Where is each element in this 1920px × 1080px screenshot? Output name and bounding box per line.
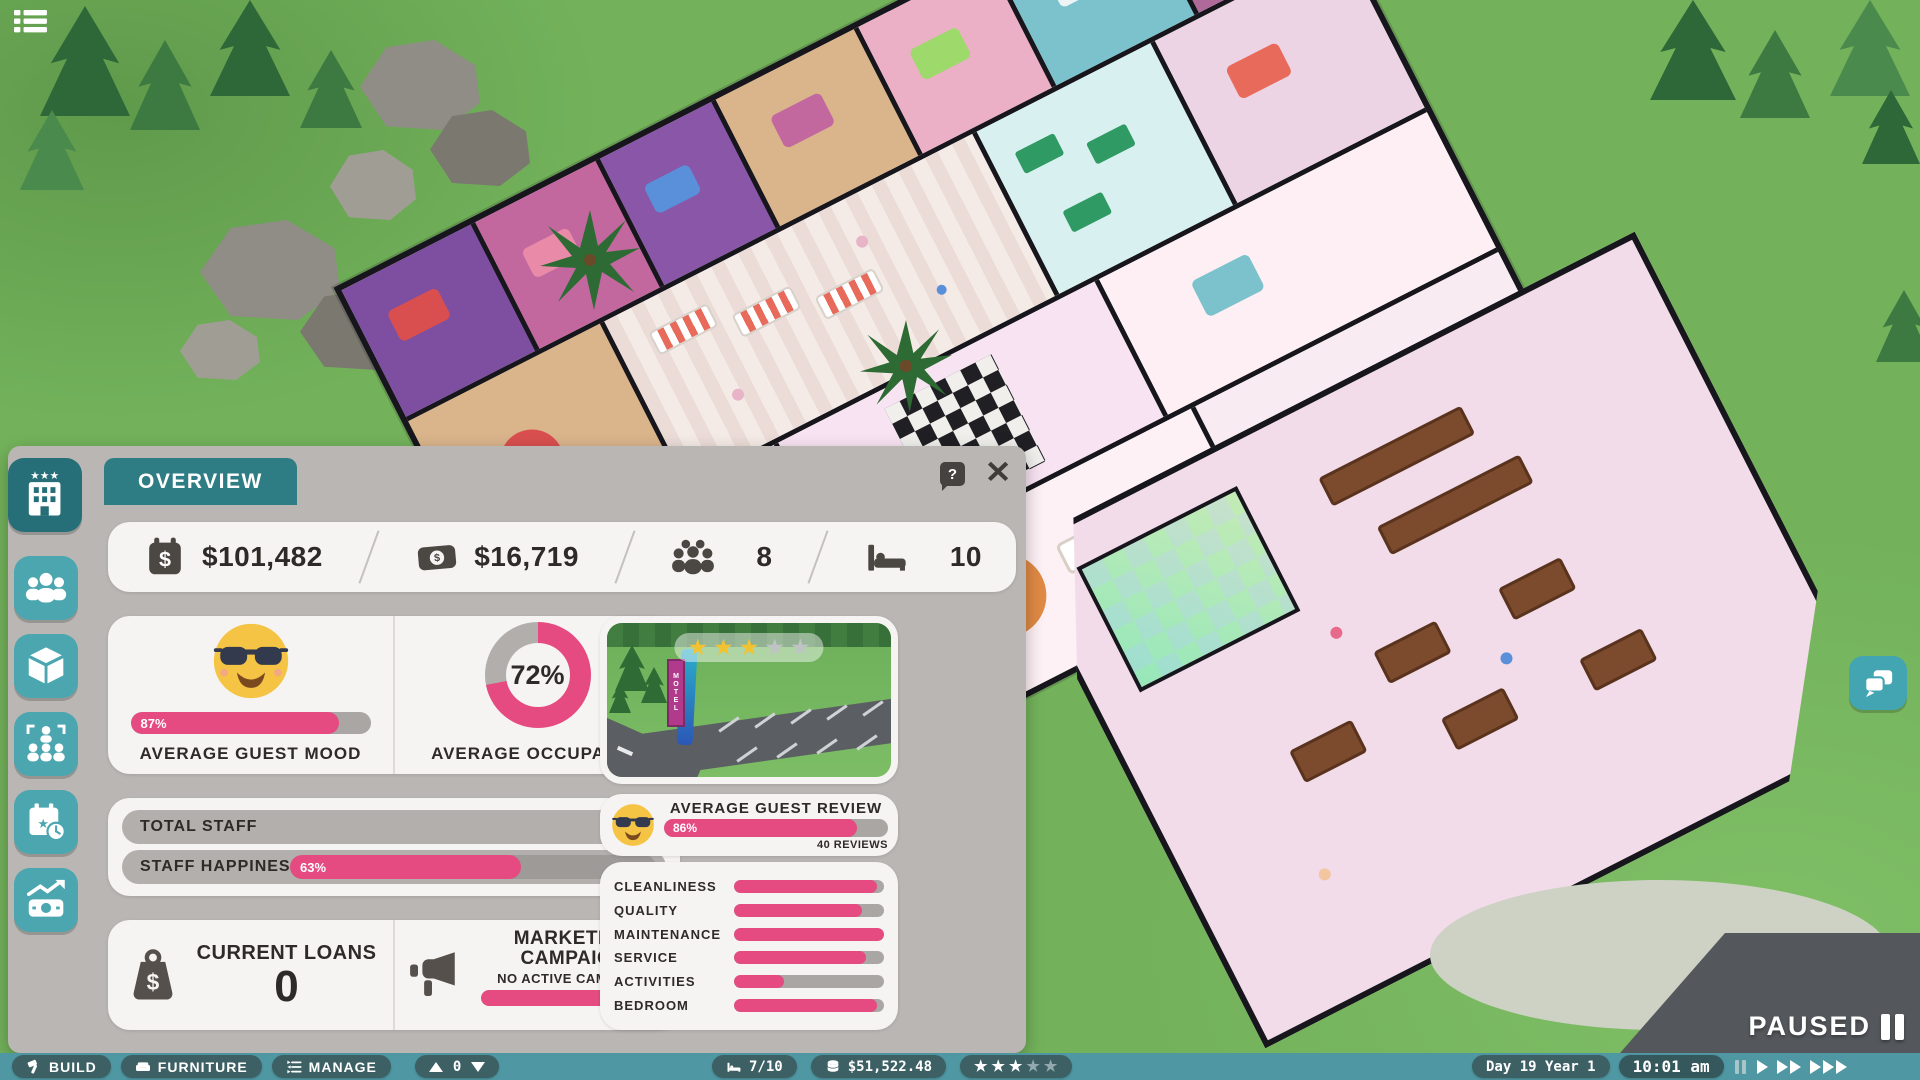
guest-mood-bar-fill: 87% [131, 712, 340, 734]
stat-balance: $ $101,482 [142, 534, 323, 580]
calendar-clock-icon: ★ [23, 799, 69, 845]
star-icon [739, 635, 760, 660]
floor-value: 0 [453, 1059, 461, 1075]
staff-happiness-bar-fill: 63% [290, 855, 521, 879]
build-label: BUILD [49, 1059, 97, 1075]
paused-indicator: PAUSED [1748, 1011, 1904, 1042]
tree-icon [1862, 90, 1920, 164]
hammer-icon [26, 1059, 42, 1075]
income-value: $16,719 [474, 541, 579, 573]
review-bar-fill: 86% [664, 819, 857, 837]
star-icon [764, 635, 785, 660]
category-label: SERVICE [614, 950, 678, 965]
total-staff-label: TOTAL STAFF [140, 818, 257, 836]
sidebar-item-rooms[interactable] [14, 634, 78, 698]
money-value: $51,522.48 [848, 1059, 932, 1075]
guests-icon [23, 565, 69, 611]
star-icon [991, 1059, 1005, 1074]
floor-down-button[interactable] [471, 1062, 485, 1072]
tab-overview[interactable]: OVERVIEW [104, 458, 297, 505]
staff-card: TOTAL STAFF 9 STAFF HAPPINESS 63% [108, 798, 680, 896]
bed-icon [864, 534, 910, 580]
pause-icon [1881, 1014, 1904, 1040]
category-bar [734, 999, 884, 1012]
motel-preview-image: MOTEL [607, 623, 891, 777]
manage-button[interactable]: MANAGE [272, 1055, 391, 1078]
category-bar [734, 928, 884, 941]
sunglasses-smiley-icon [210, 620, 292, 702]
total-staff-row: TOTAL STAFF 9 [122, 810, 666, 844]
occupancy-donut: 72% [485, 622, 591, 728]
manage-list-icon [286, 1059, 302, 1075]
staff-happiness-row: STAFF HAPPINESS 63% [122, 850, 666, 884]
current-loans-value: 0 [274, 965, 298, 1009]
sidebar-item-finance[interactable] [14, 868, 78, 932]
tree-icon [300, 50, 362, 128]
star-icon [790, 635, 811, 660]
tree-icon [1740, 30, 1810, 118]
star-icon [687, 635, 708, 660]
list-menu-icon [14, 10, 48, 33]
sidebar-item-guests[interactable] [14, 556, 78, 620]
tree-icon [130, 40, 200, 130]
category-row: ACTIVITIES [614, 974, 884, 989]
guest-group-icon [670, 534, 716, 580]
svg-text:$: $ [434, 552, 441, 564]
guests-value: 8 [756, 541, 772, 573]
tree-icon [40, 6, 130, 116]
divider [358, 530, 379, 583]
coins-icon [825, 1059, 841, 1075]
review-label: AVERAGE GUEST REVIEW [664, 800, 888, 817]
star-icon [1044, 1059, 1058, 1074]
manage-label: MANAGE [309, 1059, 377, 1075]
staff-happiness-label: STAFF HAPPINESS [140, 858, 302, 876]
star-icon [974, 1059, 988, 1074]
staff-happiness-percent: 63% [300, 860, 326, 875]
megaphone-icon [404, 947, 460, 1003]
balance-value: $101,482 [202, 541, 323, 573]
money-pill: $51,522.48 [811, 1055, 946, 1078]
bottom-toolbar: BUILD FURNITURE MANAGE [0, 1053, 1920, 1080]
bed-icon [726, 1059, 742, 1075]
floor-up-button[interactable] [429, 1062, 443, 1072]
rating-pill [960, 1055, 1072, 1078]
star-icon [1026, 1059, 1040, 1074]
stats-card: $ $101,482 $ $16,719 [108, 522, 1016, 592]
notifications-button[interactable] [1849, 656, 1907, 710]
staff-icon [23, 721, 69, 767]
category-row: CLEANLINESS [614, 879, 884, 894]
rooms-occupancy-pill: 7/10 [712, 1055, 797, 1078]
hotel-star-rating [974, 1059, 1058, 1074]
hotel-building-icon: ★★★ [18, 468, 71, 521]
tree-icon [1876, 290, 1920, 362]
time-pill: 10:01 am [1619, 1055, 1724, 1078]
guest-mood-section: 87% AVERAGE GUEST MOOD [108, 616, 393, 774]
menu-button[interactable] [14, 10, 48, 36]
category-row: MAINTENANCE [614, 927, 884, 942]
stat-guests: 8 [670, 534, 772, 580]
review-bar: 86% [664, 819, 888, 837]
furniture-label: FURNITURE [158, 1059, 248, 1075]
mood-occupancy-card: 87% AVERAGE GUEST MOOD 72% AVERAGE OCCUP… [108, 616, 680, 774]
sidebar-item-hotel[interactable]: ★★★ [8, 458, 82, 532]
build-button[interactable]: BUILD [12, 1055, 111, 1078]
rooms-value: 7/10 [749, 1059, 783, 1075]
svg-text:$: $ [159, 546, 171, 571]
toolbar-right-group: Day 19 Year 1 10:01 am [1472, 1053, 1847, 1080]
tab-label: OVERVIEW [138, 470, 263, 494]
stat-beds: 10 [864, 534, 982, 580]
category-label: CLEANLINESS [614, 879, 717, 894]
toolbar-middle-group: 7/10 $51,522.48 [712, 1053, 1072, 1080]
sofa-icon [135, 1059, 151, 1075]
pause-button[interactable] [1733, 1060, 1748, 1074]
money-trend-icon [23, 877, 69, 923]
sidebar-item-schedule[interactable]: ★ [14, 790, 78, 854]
beds-value: 10 [950, 541, 982, 573]
category-label: MAINTENANCE [614, 927, 721, 942]
furniture-button[interactable]: FURNITURE [121, 1055, 262, 1078]
category-bar [734, 880, 884, 893]
category-ratings-card: CLEANLINESS QUALITY MAINTENANCE SERVICE … [600, 862, 898, 1030]
toolbar-left-group: BUILD FURNITURE MANAGE [12, 1053, 499, 1080]
guest-mood-percent: 87% [141, 716, 167, 731]
sidebar-item-staff[interactable] [14, 712, 78, 776]
date-pill: Day 19 Year 1 [1472, 1055, 1610, 1078]
divider [808, 530, 829, 583]
sunglasses-smiley-icon [610, 802, 656, 848]
rock-icon [330, 150, 416, 220]
overview-panel: OVERVIEW ? $ $101,482 $ $16,719 [8, 446, 1026, 1053]
category-row: BEDROOM [614, 998, 884, 1013]
category-row: QUALITY [614, 903, 884, 918]
category-label: ACTIVITIES [614, 974, 696, 989]
category-bar [734, 975, 884, 988]
category-label: BEDROOM [614, 998, 689, 1013]
motel-sign-text: MOTEL [667, 659, 685, 727]
current-loans-section: $ CURRENT LOANS 0 [108, 920, 393, 1030]
tree-icon [1830, 0, 1910, 96]
category-label: QUALITY [614, 903, 678, 918]
star-icon [713, 635, 734, 660]
category-row: SERVICE [614, 950, 884, 965]
stat-income: $ $16,719 [414, 534, 579, 580]
close-button[interactable] [980, 454, 1016, 490]
paused-label: PAUSED [1748, 1011, 1871, 1042]
tree-icon [1650, 0, 1736, 100]
calendar-dollar-icon: $ [142, 534, 188, 580]
room-box-icon [23, 643, 69, 689]
motel-preview-card: MOTEL [600, 616, 898, 784]
help-button[interactable]: ? [940, 462, 965, 486]
chat-bubbles-icon [1861, 667, 1895, 699]
occupancy-percent: 72% [510, 660, 564, 691]
category-bar [734, 904, 884, 917]
floor-selector: 0 [415, 1055, 499, 1078]
tree-icon [210, 0, 290, 96]
help-icon: ? [948, 466, 957, 483]
category-bar [734, 951, 884, 964]
divider [614, 530, 635, 583]
review-percent: 86% [673, 821, 697, 835]
cash-icon: $ [414, 534, 460, 580]
guest-mood-bar: 87% [131, 712, 371, 734]
fast-forward-button[interactable] [1777, 1060, 1801, 1074]
date-value: Day 19 Year 1 [1486, 1059, 1596, 1075]
review-count: 40 REVIEWS [817, 839, 888, 851]
loan-weight-icon: $ [125, 947, 181, 1003]
rock-icon [180, 320, 260, 380]
play-button[interactable] [1757, 1060, 1768, 1074]
svg-text:★★★: ★★★ [30, 469, 59, 482]
guest-review-card: AVERAGE GUEST REVIEW 86% 40 REVIEWS [600, 794, 898, 856]
star-icon [1009, 1059, 1023, 1074]
svg-text:$: $ [146, 969, 159, 995]
motel-star-rating [674, 633, 823, 662]
time-value: 10:01 am [1633, 1057, 1710, 1076]
guest-mood-label: AVERAGE GUEST MOOD [140, 744, 362, 764]
loans-marketing-card: $ CURRENT LOANS 0 MARKETING CAMPAIGN NO … [108, 920, 680, 1030]
tree-icon [20, 110, 84, 190]
fastest-forward-button[interactable] [1810, 1060, 1847, 1074]
